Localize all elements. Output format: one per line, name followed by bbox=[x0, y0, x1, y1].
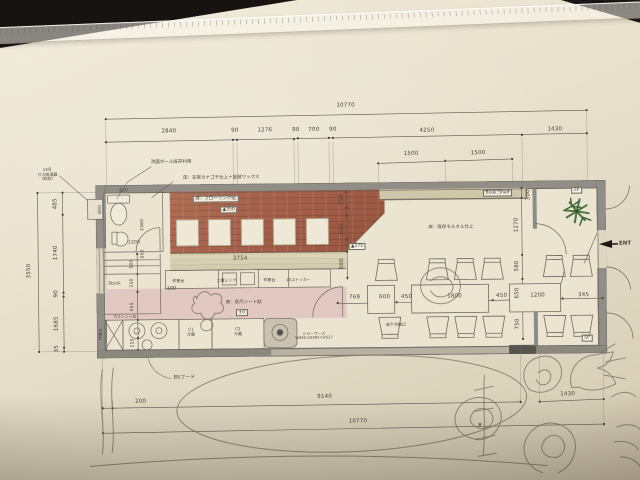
dim-label: 3754 bbox=[233, 256, 248, 262]
level-mark-175: ▲175 bbox=[349, 243, 366, 250]
interior-linework bbox=[87, 186, 633, 351]
dim-label: 450 bbox=[496, 293, 507, 299]
dim-label: 90 bbox=[231, 128, 238, 134]
dim-label: 1276 bbox=[257, 127, 272, 133]
bs-hood-label: BSフード bbox=[174, 375, 196, 381]
dim-label: 1500 bbox=[471, 150, 486, 156]
dim-label: 600 bbox=[379, 294, 390, 300]
dim-label: 450 bbox=[401, 294, 412, 300]
work-table-label: 作業台 bbox=[263, 278, 275, 283]
dim-label: 580 bbox=[514, 260, 520, 271]
fridge-c1-label: C1 冷蔵 bbox=[187, 328, 195, 337]
dim-label: 4250 bbox=[419, 128, 434, 134]
note-floor-finish: 床：左官カナゴテ仕上＋塗装ワックス bbox=[183, 175, 259, 181]
dim-label: 90 bbox=[53, 290, 59, 297]
sp-label-top: SP bbox=[571, 187, 582, 194]
dim-label: 10770 bbox=[349, 418, 368, 425]
level-mark-350: ▲350 bbox=[220, 206, 237, 213]
underfloor-hatch-label: 床下点検口 bbox=[386, 323, 406, 328]
dim-label: 485 bbox=[52, 198, 58, 209]
dim-label: 1430 bbox=[560, 391, 575, 397]
dim-label: 3550 bbox=[26, 264, 32, 279]
dim-label: 650 bbox=[514, 287, 520, 298]
dim-label: 110 bbox=[130, 338, 135, 347]
dim-label: 1560 bbox=[140, 219, 145, 231]
witness-lines bbox=[39, 112, 604, 435]
ent-arrow-icon bbox=[599, 240, 618, 248]
dim-label: 90 bbox=[329, 127, 336, 133]
work-table-label: 作業台 bbox=[172, 279, 184, 284]
sp-label-bottom: SP bbox=[582, 335, 593, 342]
kitchen-floor-label: 床：長尺シート貼 bbox=[226, 300, 262, 306]
dim-label: 345 bbox=[578, 292, 589, 298]
dim-label: 500 bbox=[130, 259, 135, 268]
dim-label: 1430 bbox=[547, 126, 562, 132]
raised-floor-finish-label: 床：フローリング貼 bbox=[193, 195, 239, 203]
dim-label: 1200 bbox=[530, 292, 545, 298]
showcase-label: ショーケース W455×D405×H517 bbox=[295, 332, 333, 341]
dim-label: 2840 bbox=[161, 128, 176, 134]
dim-label: 200 bbox=[135, 399, 146, 405]
toilet-icon bbox=[108, 195, 131, 246]
dim-label: 769 bbox=[349, 294, 360, 300]
book-shelf-label: Book Shelf bbox=[483, 189, 512, 196]
plan-linework bbox=[0, 0, 640, 480]
dim-label: 1740 bbox=[53, 245, 59, 260]
dimension-dots bbox=[36, 109, 606, 435]
work-table-label: 作業台 bbox=[99, 328, 104, 340]
dim-label: 310 bbox=[130, 278, 135, 287]
dim-label: 9140 bbox=[317, 394, 332, 400]
plant-icon bbox=[564, 198, 591, 225]
dim-label: 750 bbox=[515, 318, 521, 329]
gas-range-label: ガスレンジ台 bbox=[113, 315, 136, 320]
dim-label: 500 bbox=[141, 249, 146, 258]
dim-label: 555 bbox=[130, 302, 135, 311]
dim-label: 1270 bbox=[514, 217, 520, 232]
note-gas-heater: 13号 ガス給湯器 （既存） bbox=[37, 168, 57, 182]
entrance-label: ENT bbox=[619, 241, 631, 247]
level-mark-0: ±0 bbox=[236, 309, 248, 316]
dining-floor-label: 床：既存モルタル仕上 bbox=[428, 225, 473, 231]
dim-label: 350 bbox=[338, 194, 344, 205]
floor-plan: 10770 2840 90 1276 90 700 90 4250 1430 1… bbox=[0, 0, 640, 480]
dim-label: 1685 bbox=[54, 316, 60, 331]
dim-label: 600 bbox=[339, 258, 345, 269]
dim-label: 90 bbox=[292, 127, 299, 133]
dimension-lines bbox=[37, 110, 604, 434]
dim-label: 1200 bbox=[128, 240, 140, 245]
stocker-label: 1Gストッカー bbox=[286, 278, 310, 283]
dim-label: 35 bbox=[54, 345, 60, 352]
dim-label: 600 bbox=[98, 205, 103, 214]
dim-label: 300 bbox=[525, 189, 531, 200]
dim-label: 1800 bbox=[447, 293, 462, 299]
note-wash-bowl: 洗面ボール既存利用 bbox=[151, 160, 192, 166]
sink-label: 二槽シンク bbox=[216, 279, 236, 284]
dim-label: 420 bbox=[119, 188, 128, 193]
dim-label: 10770 bbox=[336, 102, 355, 109]
level-mark-m100: -100 bbox=[165, 287, 176, 293]
dim-label: 700 bbox=[308, 127, 319, 133]
dim-label: 1500 bbox=[404, 151, 419, 157]
stock-room-label: Stock bbox=[108, 282, 121, 287]
floor-plan-photo: 10770 2840 90 1276 90 700 90 4250 1430 1… bbox=[0, 0, 640, 480]
fridge-c2-label: C2 冷蔵 bbox=[234, 327, 242, 336]
dim-label: 650 bbox=[339, 223, 345, 234]
